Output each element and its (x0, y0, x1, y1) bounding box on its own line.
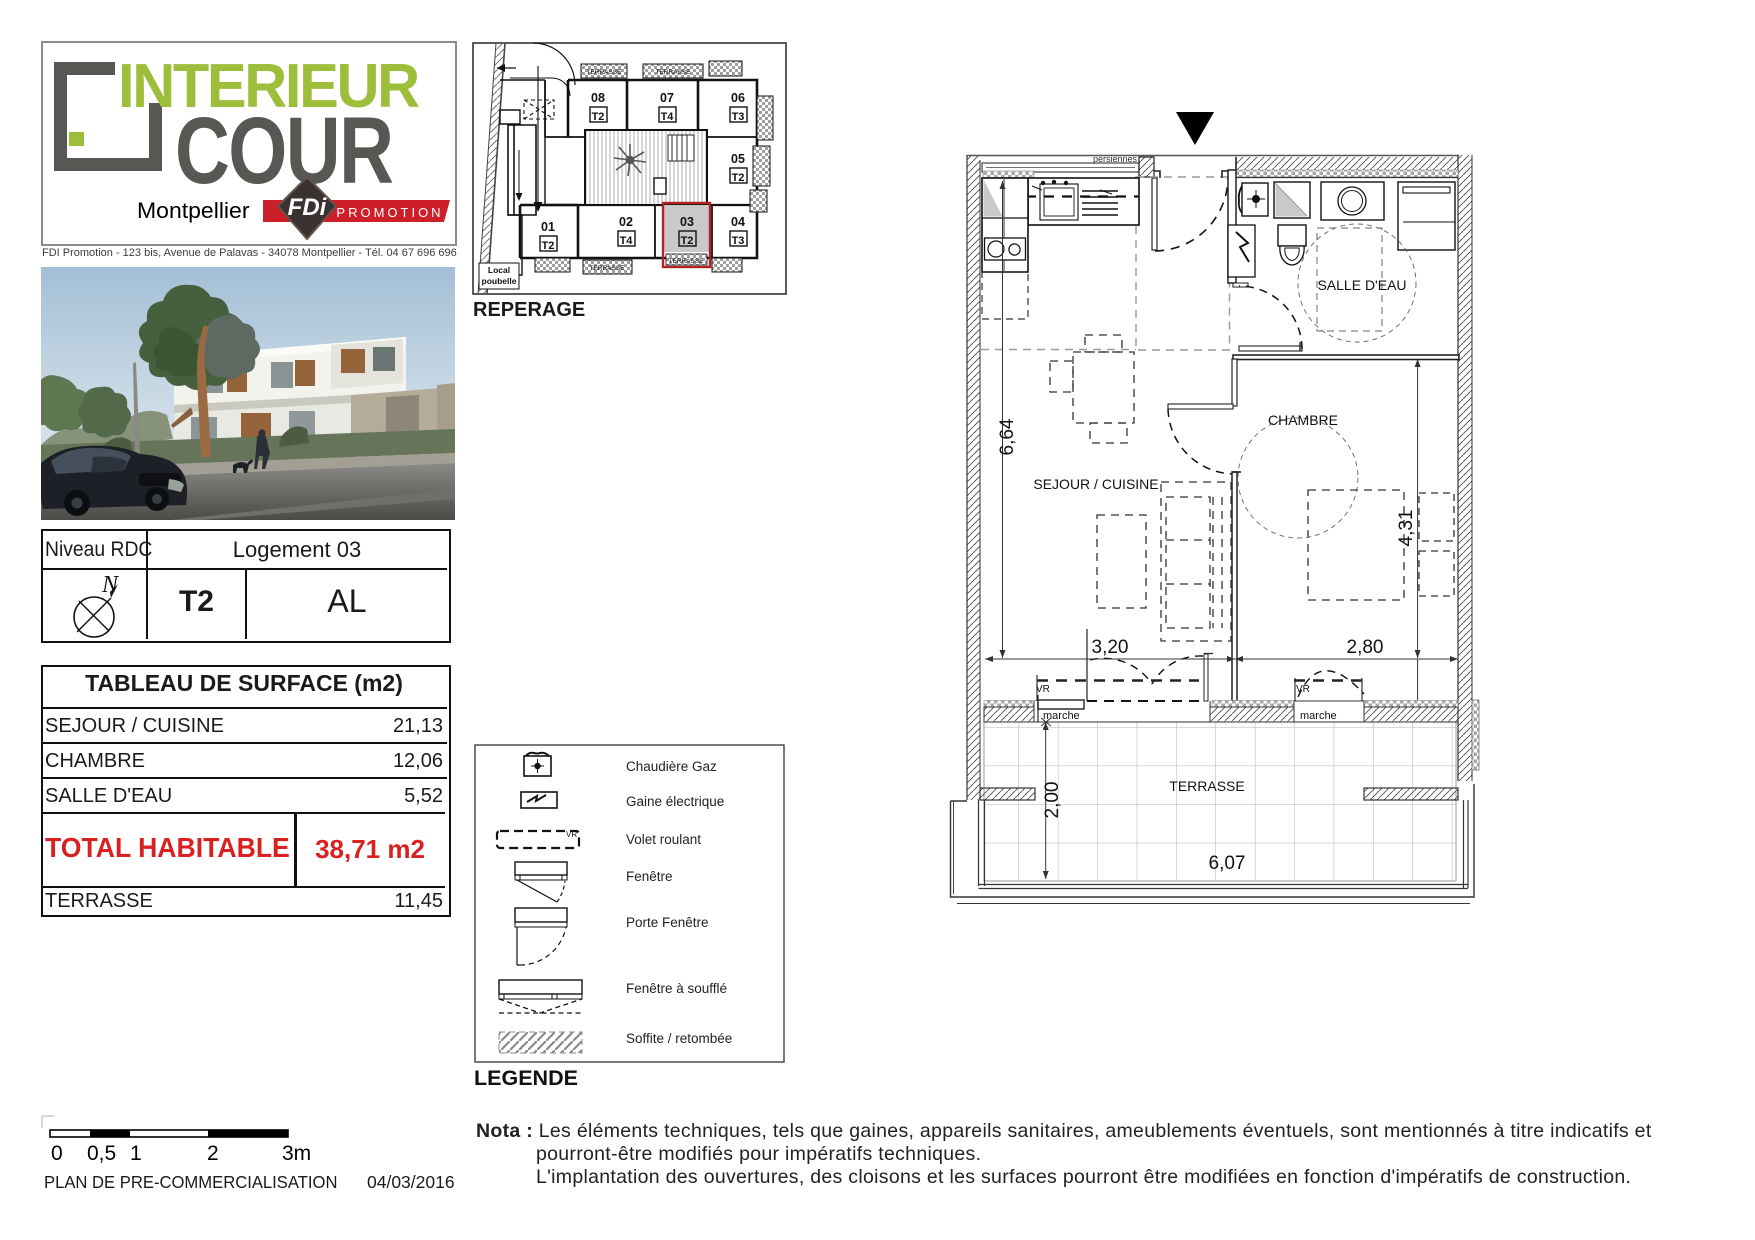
svg-text:6,64: 6,64 (997, 418, 1018, 455)
svg-text:2,00: 2,00 (1042, 782, 1063, 819)
svg-text:marche: marche (1300, 710, 1337, 722)
svg-text:T3: T3 (732, 235, 745, 247)
svg-text:4,31: 4,31 (1396, 510, 1417, 547)
svg-text:1: 1 (130, 1142, 142, 1165)
svg-text:06: 06 (731, 91, 745, 105)
svg-text:Gaine électrique: Gaine électrique (626, 794, 724, 809)
svg-text:TERRASSE: TERRASSE (586, 69, 622, 76)
svg-text:TERRASSE: TERRASSE (668, 258, 704, 265)
svg-text:Fenêtre: Fenêtre (626, 869, 673, 884)
svg-text:07: 07 (660, 91, 674, 105)
svg-text:6,07: 6,07 (1209, 853, 1246, 874)
svg-text:poubelle: poubelle (482, 276, 517, 286)
svg-text:2,80: 2,80 (1347, 637, 1384, 658)
svg-text:0,5: 0,5 (87, 1142, 116, 1165)
svg-text:persiennes: persiennes (1093, 154, 1138, 164)
svg-text:3m: 3m (282, 1142, 311, 1165)
svg-text:02: 02 (619, 215, 633, 229)
svg-text:CHAMBRE: CHAMBRE (1268, 412, 1338, 428)
svg-text:04: 04 (731, 215, 745, 229)
svg-text:LEGENDE: LEGENDE (474, 1066, 578, 1090)
svg-text:PROMOTION: PROMOTION (336, 205, 443, 220)
svg-text:08: 08 (591, 91, 605, 105)
svg-text:Volet roulant: Volet roulant (626, 832, 701, 847)
svg-text:SEJOUR / CUISINE: SEJOUR / CUISINE (1033, 476, 1158, 492)
svg-text:T2: T2 (542, 240, 555, 252)
svg-text:TERRASSE: TERRASSE (655, 69, 691, 76)
svg-text:VR: VR (1036, 684, 1050, 695)
svg-text:VR: VR (1296, 684, 1310, 695)
svg-text:TERRASSE: TERRASSE (589, 265, 625, 272)
svg-text:Fenêtre à soufflé: Fenêtre à soufflé (626, 981, 727, 996)
svg-text:2: 2 (207, 1142, 219, 1165)
svg-text:VR: VR (566, 830, 577, 839)
svg-text:3,20: 3,20 (1092, 637, 1129, 658)
svg-text:T2: T2 (681, 235, 694, 247)
svg-text:N: N (101, 572, 120, 598)
svg-text:T2: T2 (732, 172, 745, 184)
svg-text:T3: T3 (732, 111, 745, 123)
svg-text:T2: T2 (592, 111, 605, 123)
svg-text:FDi: FDi (288, 194, 328, 221)
svg-text:Soffite / retombée: Soffite / retombée (626, 1031, 732, 1046)
svg-text:T4: T4 (661, 111, 675, 123)
svg-text:0: 0 (51, 1142, 63, 1165)
svg-text:05: 05 (731, 152, 745, 166)
svg-text:T4: T4 (620, 235, 634, 247)
svg-text:Chaudière Gaz: Chaudière Gaz (626, 759, 717, 774)
svg-text:TERRASSE: TERRASSE (1169, 778, 1244, 794)
svg-text:SALLE D'EAU: SALLE D'EAU (1317, 277, 1406, 293)
svg-text:Local: Local (488, 265, 510, 275)
svg-text:03: 03 (680, 215, 694, 229)
svg-text:Porte Fenêtre: Porte Fenêtre (626, 915, 709, 930)
svg-text:01: 01 (541, 220, 555, 234)
